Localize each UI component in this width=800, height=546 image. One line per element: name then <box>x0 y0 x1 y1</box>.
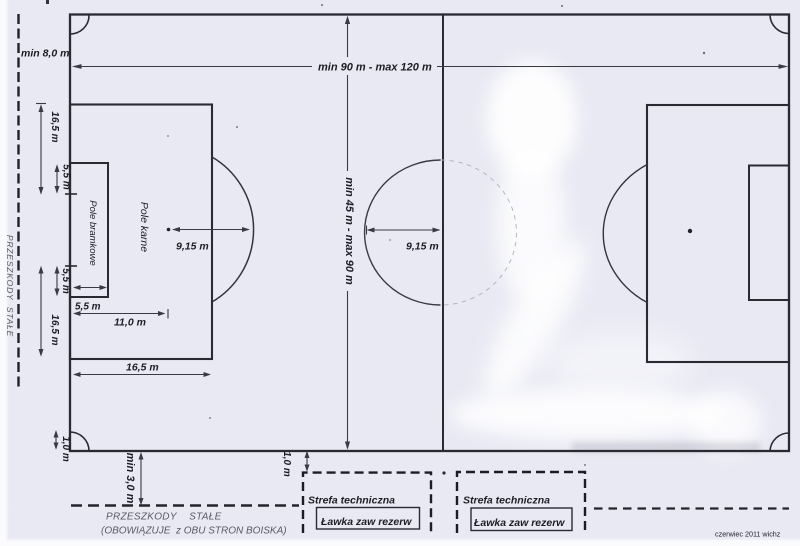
svg-text:Pole bramkowe: Pole bramkowe <box>87 200 98 265</box>
svg-text:5,5 m: 5,5 m <box>60 268 71 294</box>
svg-text:min 45 m - max 90 m: min 45 m - max 90 m <box>343 177 355 285</box>
svg-text:Pole karne: Pole karne <box>138 202 150 252</box>
svg-text:16,5 m: 16,5 m <box>49 111 60 142</box>
svg-text:(OBOWIĄZUJE z OBU STRON BOISK: (OBOWIĄZUJE z OBU STRON BOISKA) <box>101 526 287 537</box>
svg-text:Strefa techniczna: Strefa techniczna <box>463 495 550 507</box>
svg-text:PRZESZKODY STAŁE: PRZESZKODY STAŁE <box>106 512 222 523</box>
svg-text:min 3,0 m: min 3,0 m <box>124 453 136 504</box>
svg-text:Strefa techniczna: Strefa techniczna <box>308 495 395 507</box>
svg-text:Ławka zaw rezerw: Ławka zaw rezerw <box>320 516 412 528</box>
svg-text:9,15 m: 9,15 m <box>176 241 209 253</box>
svg-text:min 8,0 m: min 8,0 m <box>21 48 69 60</box>
svg-text:16,5 m: 16,5 m <box>126 362 159 374</box>
svg-text:5,5 m: 5,5 m <box>75 302 101 313</box>
svg-text:czerwiec 2011 wichz: czerwiec 2011 wichz <box>715 530 781 539</box>
svg-text:11,0 m: 11,0 m <box>114 317 146 329</box>
svg-text:min 90 m - max 120 m: min 90 m - max 120 m <box>318 62 432 74</box>
svg-text:5,5 m: 5,5 m <box>61 164 72 190</box>
svg-text:1,0 m: 1,0 m <box>281 451 292 477</box>
svg-text:1,0 m: 1,0 m <box>60 436 71 462</box>
svg-text:PRZESZKODY STAŁE: PRZESZKODY STAŁE <box>5 235 15 337</box>
svg-text:9,15 m: 9,15 m <box>406 241 439 253</box>
svg-text:16,5 m: 16,5 m <box>49 314 60 345</box>
svg-text:Ławka zaw rezerw: Ławka zaw rezerw <box>473 517 565 529</box>
